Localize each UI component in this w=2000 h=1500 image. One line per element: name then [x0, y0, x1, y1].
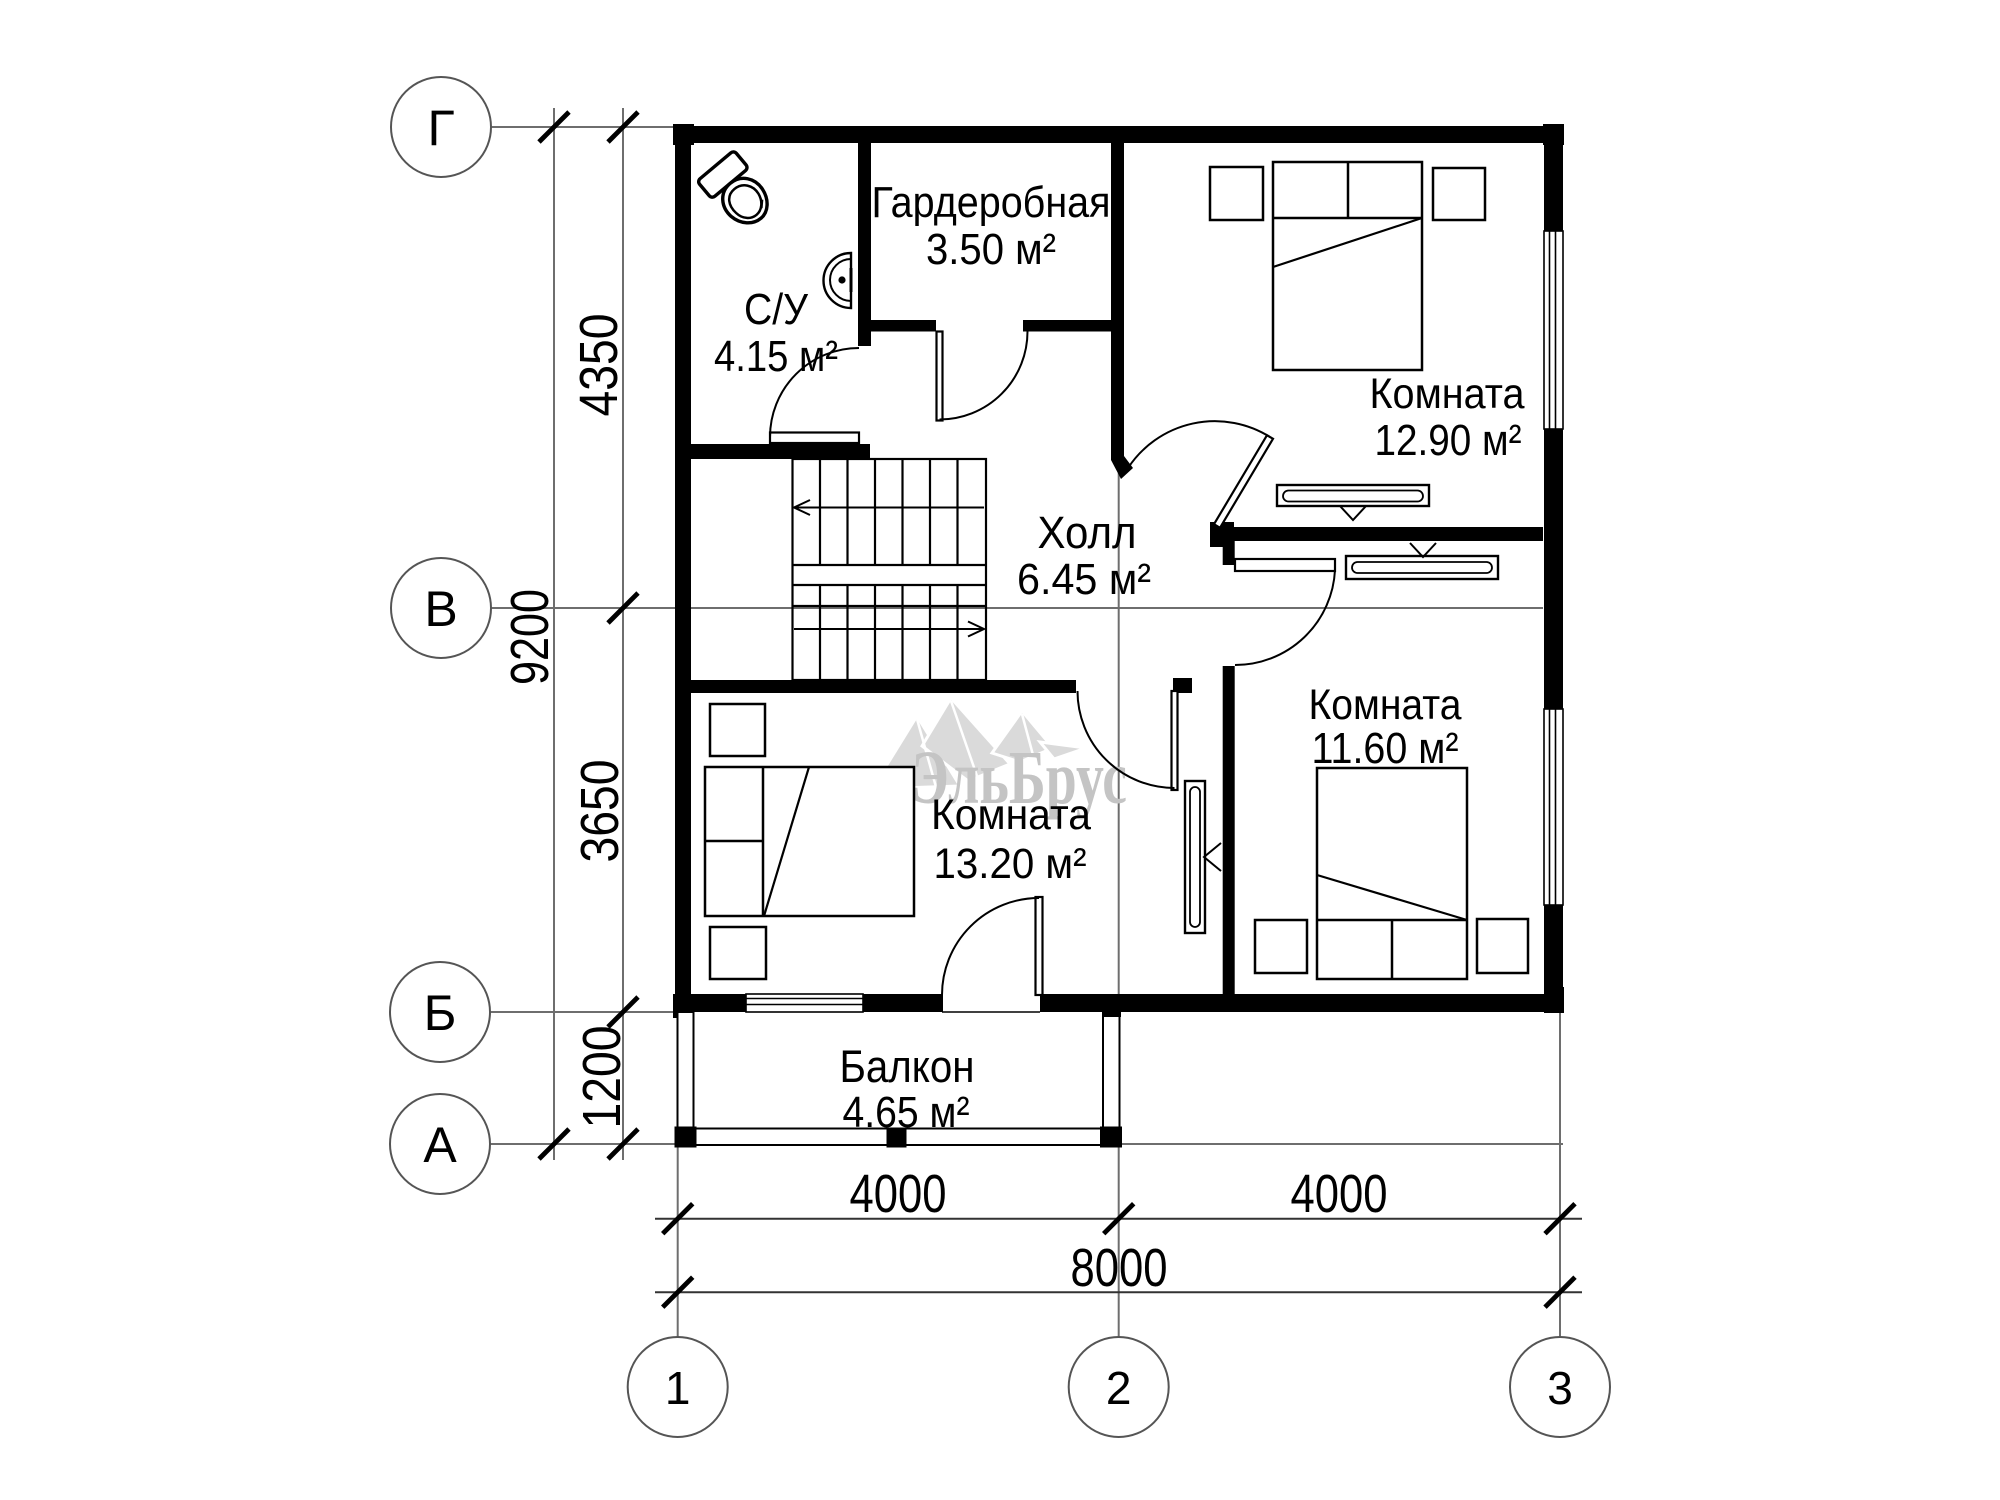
svg-text:Холл: Холл — [1038, 507, 1137, 558]
svg-text:Комната: Комната — [931, 791, 1091, 839]
svg-text:С/У: С/У — [744, 285, 809, 334]
svg-text:13.20 м²: 13.20 м² — [934, 840, 1087, 888]
svg-text:Г: Г — [427, 100, 454, 156]
svg-text:Гардеробная: Гардеробная — [872, 178, 1111, 227]
svg-text:1200: 1200 — [572, 1026, 632, 1129]
svg-text:4.15 м²: 4.15 м² — [714, 332, 838, 381]
svg-text:1: 1 — [665, 1362, 691, 1414]
svg-text:3: 3 — [1547, 1362, 1573, 1414]
svg-text:2: 2 — [1106, 1362, 1132, 1414]
svg-text:Комната: Комната — [1370, 370, 1525, 418]
svg-text:В: В — [424, 581, 457, 637]
svg-text:8000: 8000 — [1071, 1238, 1168, 1298]
svg-text:4000: 4000 — [1291, 1164, 1388, 1224]
svg-text:3650: 3650 — [570, 760, 630, 863]
svg-text:12.90 м²: 12.90 м² — [1375, 416, 1522, 465]
svg-text:Балкон: Балкон — [840, 1041, 975, 1092]
svg-text:4350: 4350 — [569, 314, 629, 417]
svg-text:3.50 м²: 3.50 м² — [926, 225, 1056, 274]
svg-text:4000: 4000 — [850, 1164, 947, 1224]
svg-text:9200: 9200 — [500, 589, 560, 685]
svg-text:11.60 м²: 11.60 м² — [1312, 724, 1459, 773]
svg-text:6.45 м²: 6.45 м² — [1017, 555, 1151, 604]
svg-text:Б: Б — [424, 985, 457, 1041]
svg-text:4.65 м²: 4.65 м² — [843, 1088, 970, 1137]
svg-text:Комната: Комната — [1309, 681, 1462, 729]
svg-text:А: А — [423, 1117, 457, 1173]
